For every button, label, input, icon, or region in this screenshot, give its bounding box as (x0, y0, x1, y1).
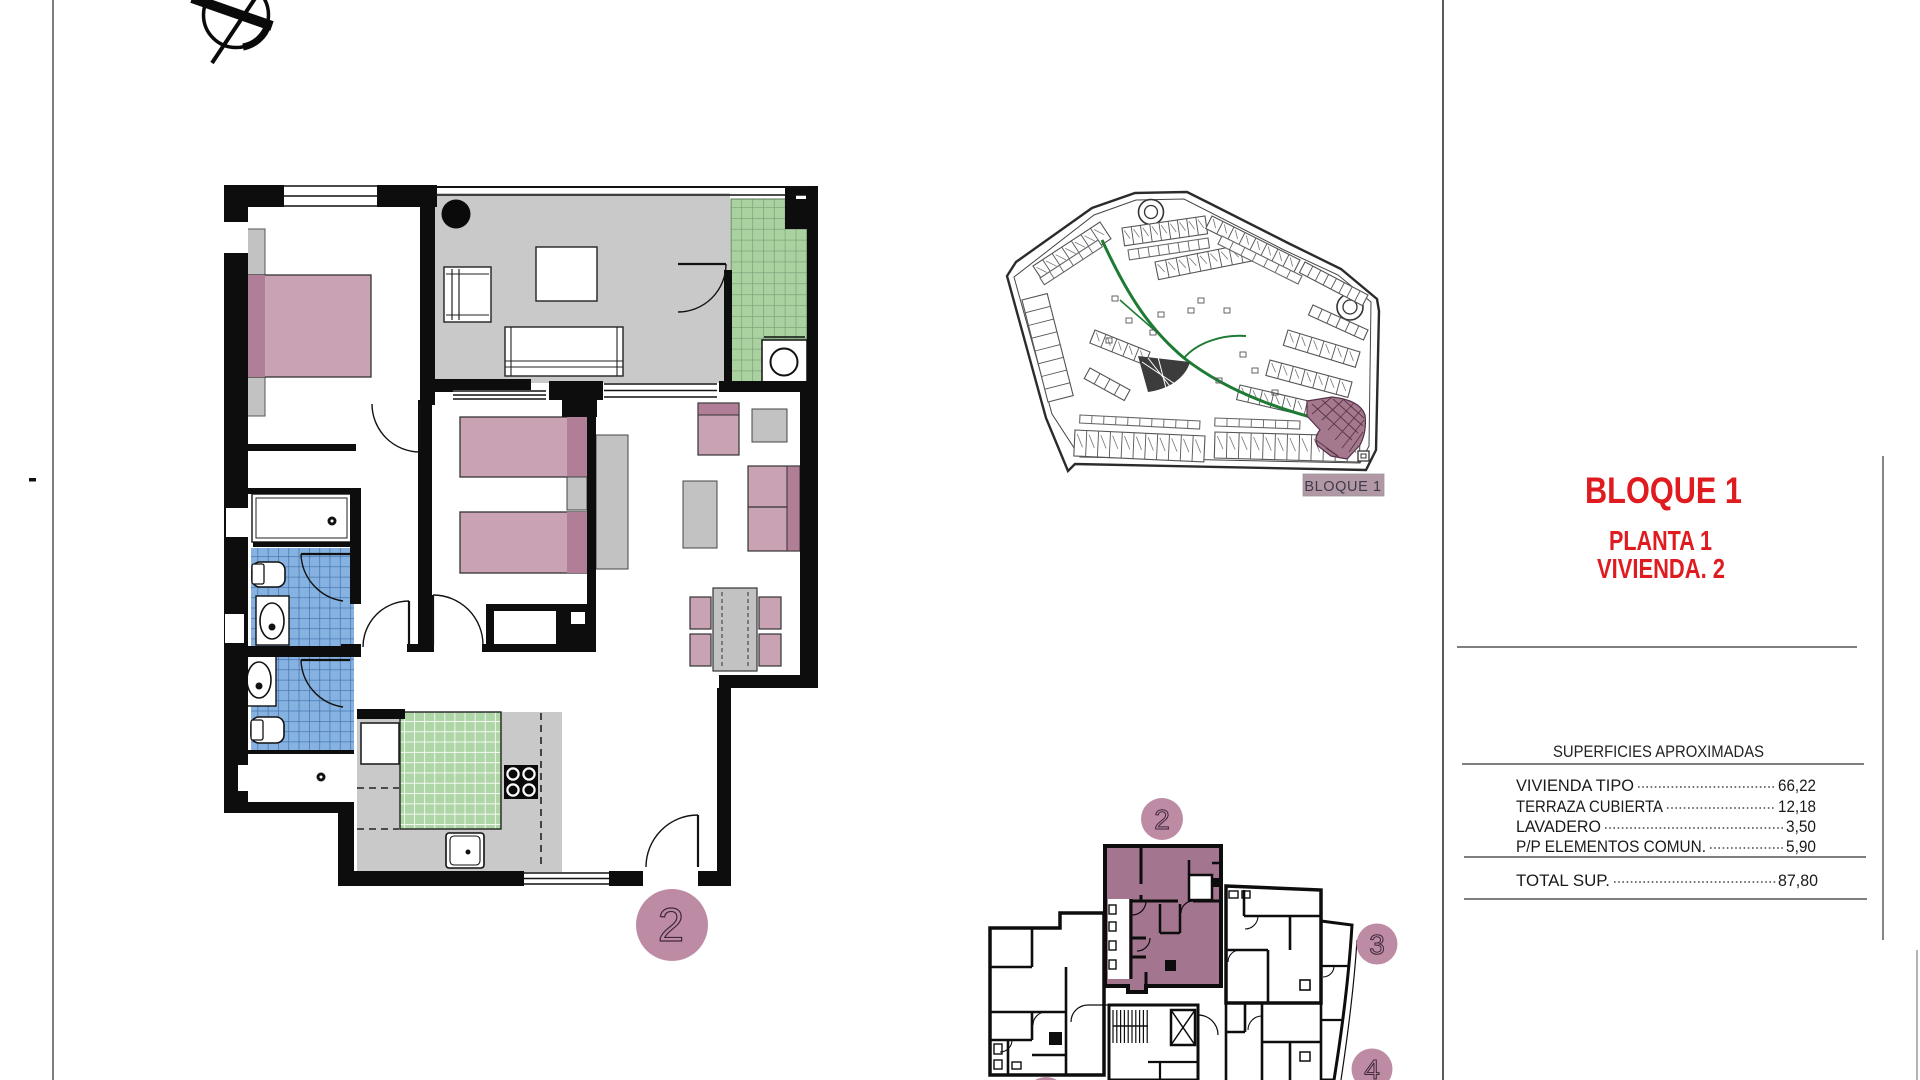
svg-text:12,18: 12,18 (1778, 798, 1816, 816)
svg-text:VIVIENDA TIPO: VIVIENDA TIPO (1516, 777, 1634, 795)
svg-text:LAVADERO: LAVADERO (1516, 818, 1601, 836)
svg-text:TOTAL SUP.: TOTAL SUP. (1516, 872, 1610, 890)
svg-text:2: 2 (658, 898, 684, 951)
svg-text:66,22: 66,22 (1778, 777, 1816, 795)
svg-text:TERRAZA CUBIERTA: TERRAZA CUBIERTA (1516, 798, 1663, 816)
svg-text:SUPERFICIES APROXIMADAS: SUPERFICIES APROXIMADAS (1553, 743, 1764, 761)
svg-text:3,50: 3,50 (1786, 818, 1816, 836)
svg-text:P/P ELEMENTOS COMUN.: P/P ELEMENTOS COMUN. (1516, 838, 1706, 856)
svg-text:2: 2 (1154, 804, 1170, 835)
svg-text:5,90: 5,90 (1786, 838, 1816, 856)
svg-text:BLOQUE 1: BLOQUE 1 (1585, 469, 1742, 511)
svg-text:BLOQUE 1: BLOQUE 1 (1304, 479, 1381, 495)
svg-text:87,80: 87,80 (1778, 872, 1818, 890)
svg-text:4: 4 (1364, 1054, 1380, 1080)
svg-text:VIVIENDA. 2: VIVIENDA. 2 (1597, 553, 1725, 584)
svg-text:3: 3 (1369, 929, 1385, 960)
svg-text:PLANTA 1: PLANTA 1 (1609, 525, 1712, 556)
